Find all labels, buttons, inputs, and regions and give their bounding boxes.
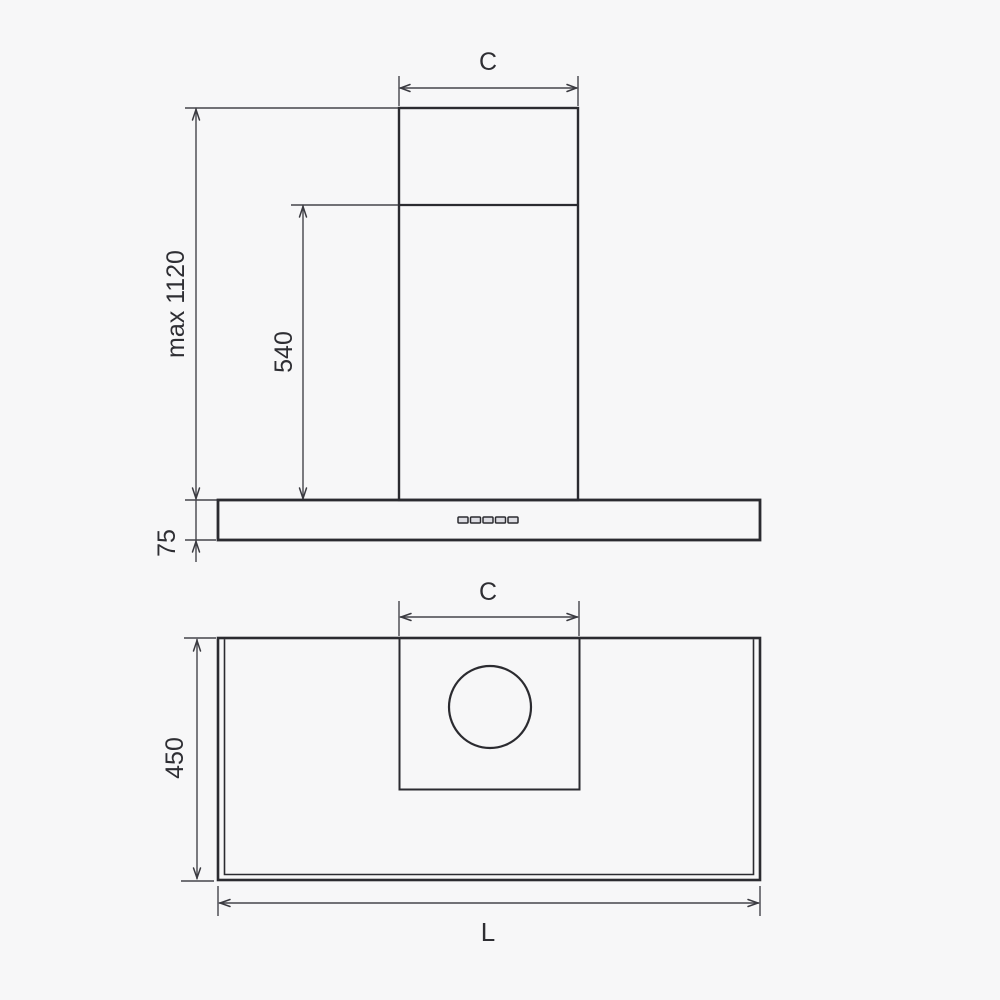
hood-top-outer-edge bbox=[218, 638, 760, 880]
dim-label-body-height: 75 bbox=[153, 529, 181, 557]
chimney-footprint bbox=[400, 639, 580, 790]
dim-label-chimney-height: 540 bbox=[270, 331, 298, 373]
front-chimney-width-dimension: C bbox=[399, 48, 578, 106]
dim-label-max-height: max 1120 bbox=[162, 250, 190, 358]
chimney-body bbox=[399, 108, 578, 500]
control-button bbox=[483, 517, 493, 523]
body-height-dimension: 75 bbox=[153, 500, 216, 562]
duct-outlet-circle bbox=[449, 666, 531, 748]
hood-top-outline bbox=[218, 638, 760, 880]
hood-dimension-drawing: C max 1120 540 bbox=[0, 0, 1000, 1000]
dim-label-plan-chimney-width: C bbox=[479, 578, 497, 606]
front-view: C max 1120 540 bbox=[153, 48, 760, 562]
hood-top-inner-rim bbox=[225, 640, 754, 875]
chimney-outline bbox=[399, 108, 578, 500]
control-button bbox=[458, 517, 468, 523]
plan-chimney-width-dimension: C bbox=[399, 578, 579, 636]
drawing-canvas: C max 1120 540 bbox=[0, 0, 1000, 1000]
depth-dimension: 450 bbox=[161, 638, 216, 881]
control-button bbox=[508, 517, 518, 523]
control-buttons bbox=[458, 517, 518, 523]
length-dimension: L bbox=[218, 886, 760, 947]
chimney-footprint-outline bbox=[400, 639, 580, 790]
dim-label-chimney-width: C bbox=[479, 48, 497, 76]
control-button bbox=[471, 517, 481, 523]
max-height-dimension: max 1120 bbox=[162, 108, 398, 500]
hood-body-outline bbox=[185, 500, 760, 540]
dim-label-depth: 450 bbox=[161, 737, 189, 779]
dim-label-length: L bbox=[481, 917, 495, 947]
chimney-height-dimension: 540 bbox=[270, 205, 398, 500]
plan-view: C 450 L bbox=[161, 578, 760, 947]
control-button bbox=[496, 517, 506, 523]
